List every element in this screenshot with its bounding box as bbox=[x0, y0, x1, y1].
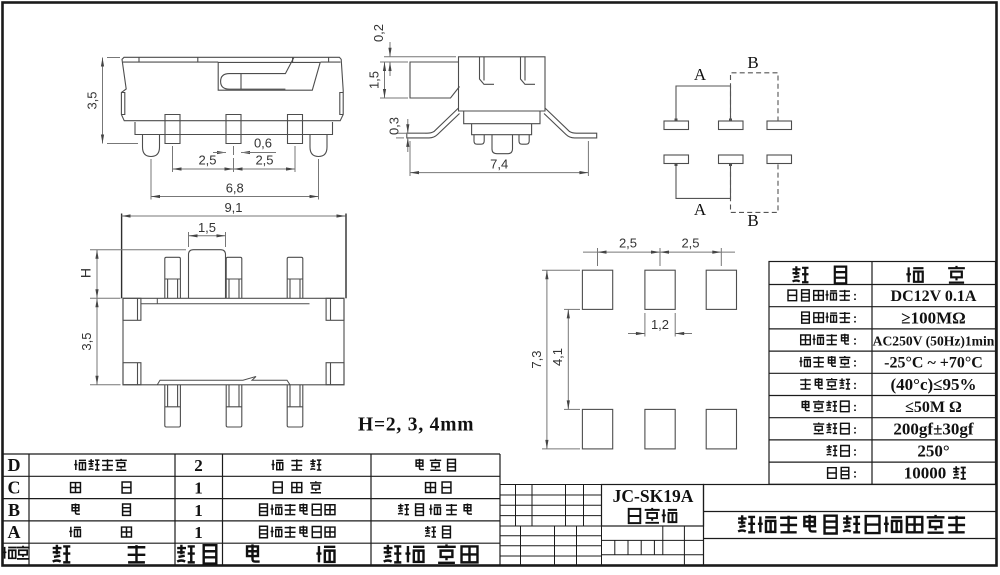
svg-text::: : bbox=[853, 378, 857, 392]
svg-text:2,5: 2,5 bbox=[198, 153, 216, 168]
svg-text:B: B bbox=[8, 500, 20, 520]
svg-text:-25°C ~ +70°C: -25°C ~ +70°C bbox=[884, 355, 983, 372]
svg-text:H=2, 3, 4mm: H=2, 3, 4mm bbox=[358, 415, 474, 436]
svg-text:2,5: 2,5 bbox=[619, 236, 637, 251]
svg-text:1: 1 bbox=[194, 523, 203, 542]
svg-text:9,1: 9,1 bbox=[224, 200, 242, 215]
svg-text:7,4: 7,4 bbox=[490, 157, 508, 172]
svg-text:AC250V (50Hz)1min: AC250V (50Hz)1min bbox=[873, 334, 995, 350]
svg-text:250°: 250° bbox=[917, 442, 949, 461]
svg-text:2,5: 2,5 bbox=[255, 153, 273, 168]
svg-text:0,3: 0,3 bbox=[387, 117, 402, 135]
svg-text:1,5: 1,5 bbox=[198, 220, 216, 235]
svg-text::: : bbox=[853, 334, 857, 348]
svg-text:A: A bbox=[694, 200, 707, 219]
svg-text::: : bbox=[853, 467, 857, 481]
svg-text:7,3: 7,3 bbox=[529, 351, 544, 369]
svg-text:10000: 10000 bbox=[904, 464, 947, 483]
svg-text:1,5: 1,5 bbox=[367, 71, 382, 89]
svg-text::: : bbox=[853, 445, 857, 459]
svg-text:2: 2 bbox=[194, 456, 203, 475]
svg-text:H: H bbox=[78, 268, 94, 278]
svg-text:0,2: 0,2 bbox=[371, 24, 386, 42]
svg-text:0,6: 0,6 bbox=[254, 136, 272, 151]
svg-text:A: A bbox=[8, 522, 21, 542]
svg-text:B: B bbox=[747, 53, 758, 72]
svg-text:(40°c)≤95%: (40°c)≤95% bbox=[891, 375, 977, 394]
svg-text:1,2: 1,2 bbox=[651, 317, 669, 332]
svg-text:DC12V 0.1A: DC12V 0.1A bbox=[891, 288, 977, 305]
svg-text::: : bbox=[853, 422, 857, 436]
svg-text:1: 1 bbox=[194, 501, 203, 520]
svg-text:200gf±30gf: 200gf±30gf bbox=[893, 419, 973, 438]
svg-text:4,1: 4,1 bbox=[550, 348, 565, 366]
svg-text:6,8: 6,8 bbox=[226, 181, 244, 196]
svg-text:3,5: 3,5 bbox=[79, 333, 94, 351]
svg-text:3,5: 3,5 bbox=[85, 91, 100, 109]
svg-text::: : bbox=[853, 289, 857, 303]
svg-text:≤50M Ω: ≤50M Ω bbox=[905, 399, 962, 416]
svg-text:D: D bbox=[8, 455, 21, 475]
svg-text:A: A bbox=[694, 65, 707, 84]
svg-text:JC-SK19A: JC-SK19A bbox=[613, 486, 694, 506]
svg-text::: : bbox=[853, 311, 857, 325]
svg-text:1: 1 bbox=[194, 478, 203, 497]
svg-text:≥100MΩ: ≥100MΩ bbox=[901, 308, 966, 327]
svg-text:2,5: 2,5 bbox=[681, 236, 699, 251]
svg-text:B: B bbox=[747, 211, 758, 230]
svg-text:C: C bbox=[8, 477, 21, 497]
svg-text::: : bbox=[853, 400, 857, 414]
svg-text::: : bbox=[853, 356, 857, 370]
